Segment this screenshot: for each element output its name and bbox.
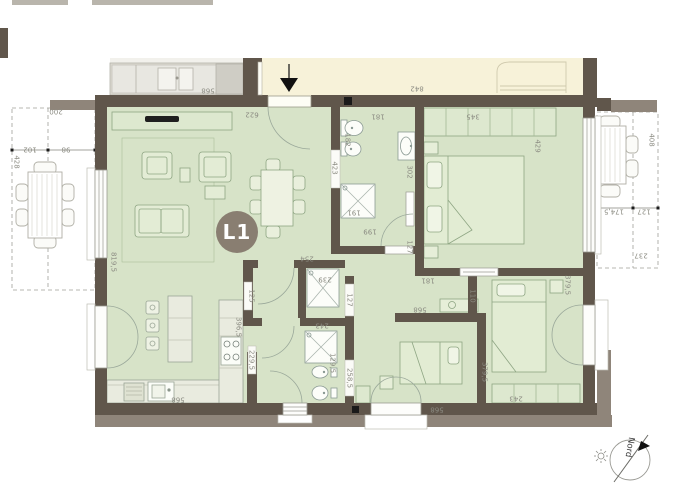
chair [250, 200, 262, 214]
dimension-label: 408 [648, 133, 655, 146]
left-balcony-table [16, 162, 74, 248]
dimension-label: 243 [509, 395, 522, 402]
dimension-label: 568 [171, 396, 184, 403]
dimension-label: 254 [300, 255, 313, 262]
chair [62, 209, 74, 226]
chair [250, 176, 262, 190]
north-arrow [594, 435, 650, 482]
unit-badge: L1 [216, 211, 258, 253]
dimension-label: 239 [318, 276, 331, 283]
dimension-label: 622 [245, 111, 258, 118]
dimension-label: 110 [469, 289, 476, 302]
toilet [312, 386, 328, 400]
neighbor-sink [158, 68, 176, 90]
window [87, 168, 107, 260]
pillow [497, 284, 525, 296]
dimension-label: 200 [49, 108, 62, 115]
dimension-label: 129,5 [329, 353, 336, 373]
peninsula [168, 296, 192, 362]
dimension-label: 423 [331, 161, 338, 174]
exterior-band-topright [611, 100, 657, 112]
dimension-label: 102 [23, 146, 36, 153]
dimension-label: 819,5 [110, 252, 117, 272]
dimension-label: 345 [466, 113, 479, 120]
dimension-label: 229,5 [248, 350, 255, 370]
dresser [356, 386, 370, 403]
dimension-label: 258,5 [346, 368, 353, 388]
dimension-label: 842 [410, 85, 423, 92]
dimension-label: 429 [534, 139, 541, 152]
neighbor-kitchen-counter [110, 63, 243, 95]
dimension-label: 568 [430, 406, 443, 413]
dimension-label: 243 [315, 322, 328, 329]
dimension-label: 127 [406, 240, 413, 253]
dimension-label: 428 [13, 155, 20, 168]
dimension-label: 182 [344, 133, 351, 146]
armchair [142, 152, 172, 179]
bar-stools [146, 301, 159, 350]
chair [266, 159, 280, 171]
chair [293, 176, 305, 190]
dimension-label: 127 [346, 293, 353, 306]
ottoman [205, 186, 225, 199]
chair [626, 136, 638, 153]
nightstand [550, 280, 563, 293]
cooktop [221, 337, 241, 365]
plan-drawing [0, 0, 690, 500]
coffee-table [180, 168, 190, 182]
sun-icon [594, 449, 608, 463]
washbasin [312, 366, 328, 378]
dining-table [261, 170, 293, 226]
dimension-label: 127 [637, 208, 650, 215]
dimension-label: 199 [363, 228, 376, 235]
left-balcony [11, 108, 97, 290]
dimension-label: 125 [248, 289, 255, 302]
exterior-band-bottom [95, 415, 612, 427]
dimension-label: 98 [62, 146, 71, 153]
dimension-label: 302 [406, 165, 413, 178]
window [583, 116, 601, 254]
chair [626, 160, 638, 177]
chair [16, 184, 28, 201]
tv [145, 116, 179, 122]
pillow [427, 162, 442, 188]
nightstand [424, 142, 438, 154]
chair [62, 184, 74, 201]
chair [293, 200, 305, 214]
chair [16, 209, 28, 226]
dimension-label: 181 [421, 277, 434, 284]
side-table [380, 376, 393, 389]
dishwasher [124, 383, 144, 401]
window [278, 403, 312, 423]
floor-plan: 56884262218134520010298428819,5423182191… [0, 0, 690, 500]
sofa [135, 205, 189, 237]
dimension-label: 191 [347, 209, 360, 216]
dimension-label: 181 [371, 113, 384, 120]
sliding-door [460, 268, 498, 276]
dimension-label: 174,5 [604, 208, 624, 215]
pillow [448, 347, 459, 364]
pillow [427, 206, 442, 232]
chair [266, 226, 280, 238]
dimension-label: 396,5 [235, 317, 242, 337]
dimension-label: 568 [201, 87, 214, 94]
dimension-label: 568 [413, 306, 426, 313]
dimension-label: 237 [634, 252, 647, 259]
dimension-label: 379,5 [481, 362, 488, 382]
dimension-label: 379,5 [564, 275, 571, 295]
nightstand [424, 246, 438, 258]
chair [600, 185, 620, 197]
